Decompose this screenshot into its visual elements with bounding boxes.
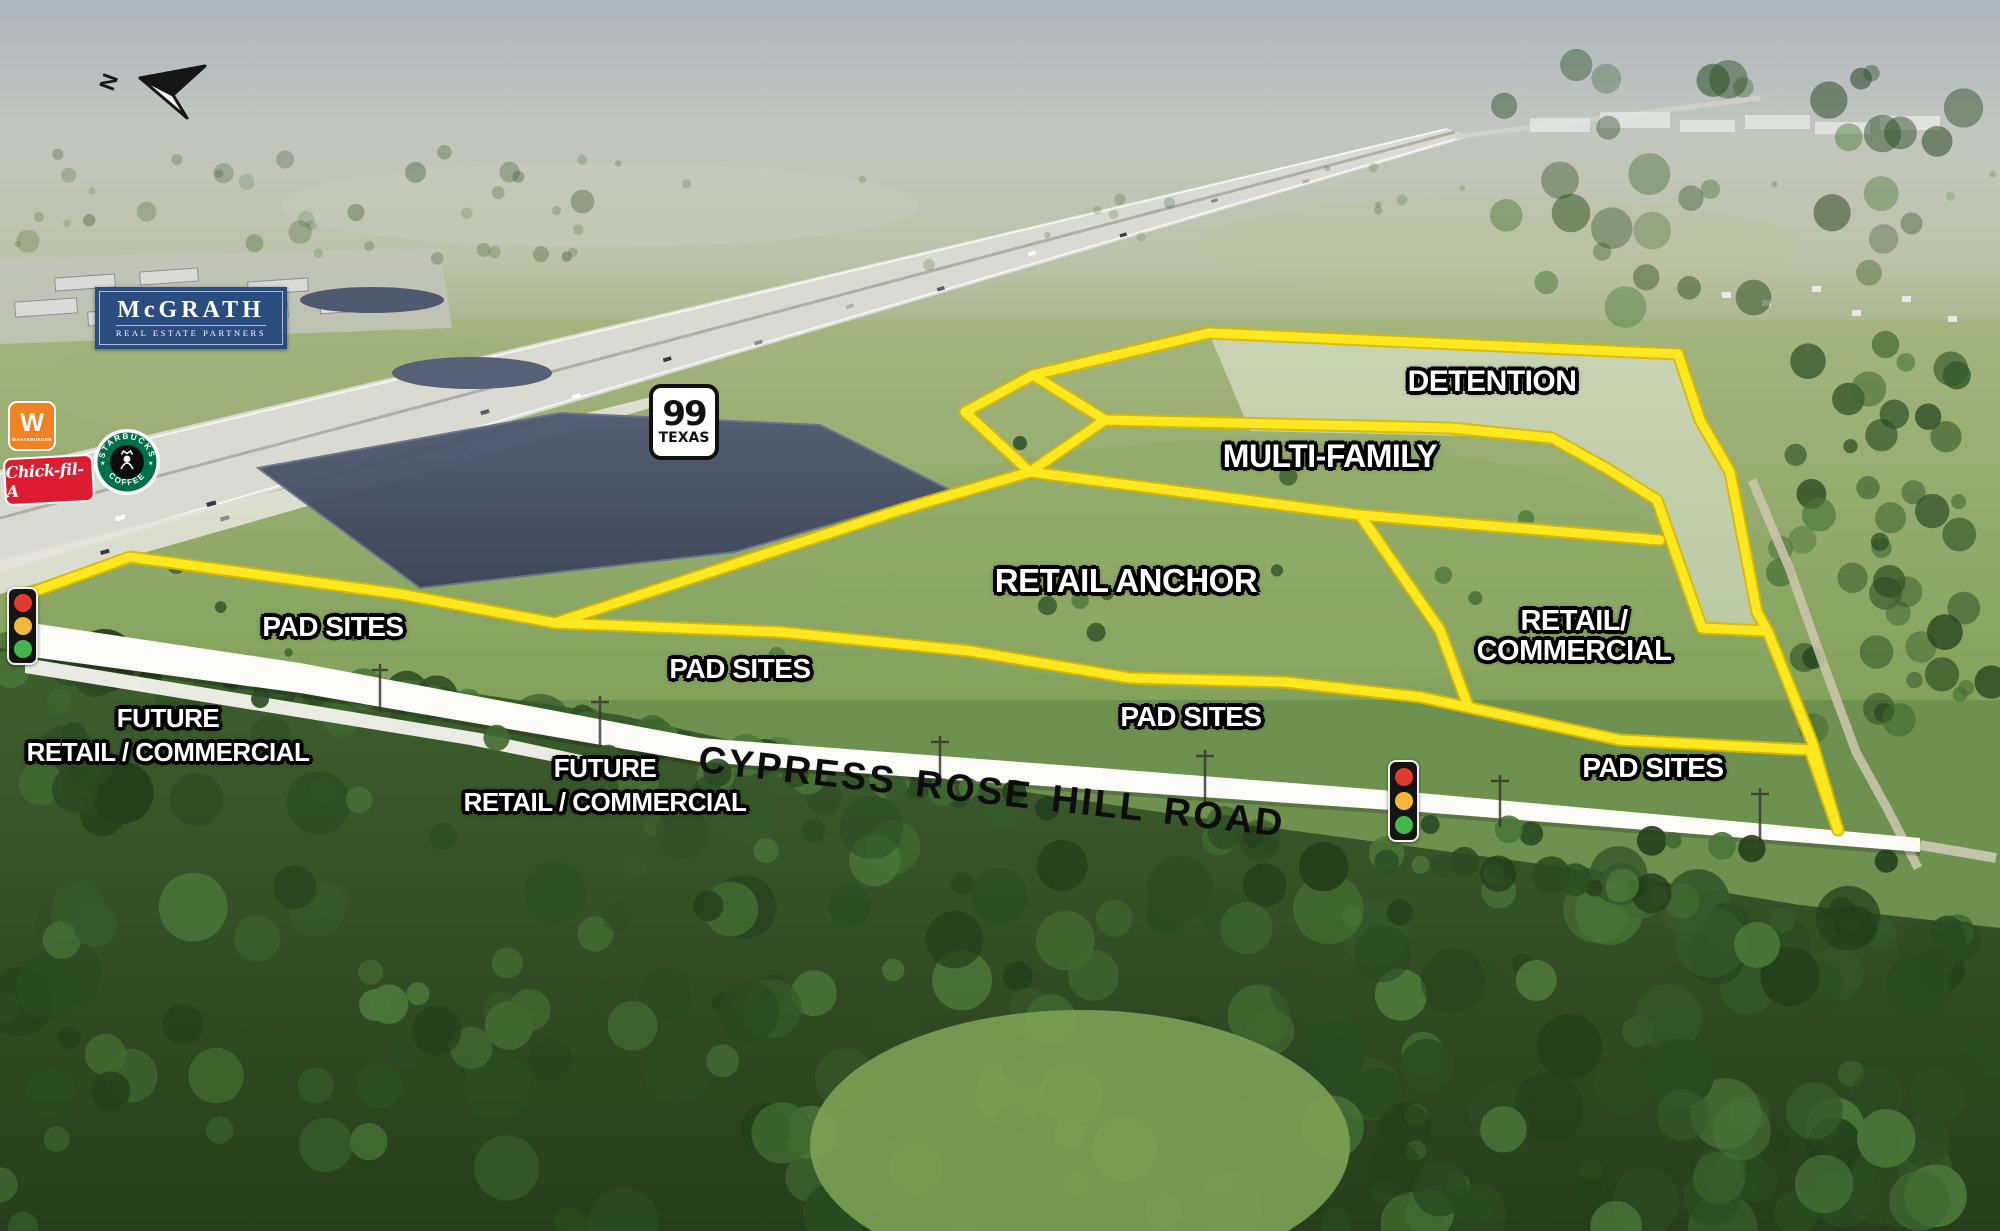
- amber-light-icon: [14, 617, 32, 635]
- north-arrow-icon: N: [95, 50, 225, 134]
- mcgrath-name: McGRATH: [117, 298, 265, 322]
- label-detention: DETENTION: [1372, 366, 1612, 398]
- chickfila-logo-icon: Chick-fil-A: [3, 454, 95, 507]
- red-light-icon: [14, 594, 32, 612]
- label-future-retail-1: FUTURE RETAIL / COMMERCIAL: [10, 702, 326, 770]
- starbucks-star-left: ★: [100, 460, 105, 467]
- traffic-light-icon-west: [7, 587, 38, 665]
- label-multi-family: MULTI-FAMILY: [1205, 440, 1455, 474]
- aerial-site-plan: N McGRATH REAL ESTATE PARTNERS W WHATABU…: [0, 0, 2000, 1231]
- starbucks-star-right: ★: [148, 460, 153, 467]
- highway-state: TEXAS: [659, 430, 710, 446]
- green-light-icon: [1395, 816, 1413, 834]
- highway-number: 99: [662, 398, 705, 430]
- highway-99-shield-icon: 99 TEXAS: [649, 384, 719, 460]
- apartment-pond: [300, 287, 444, 313]
- whataburger-logo-icon: W WHATABURGER: [8, 401, 56, 451]
- north-label: N: [95, 70, 123, 93]
- mcgrath-divider: [116, 325, 265, 326]
- label-pad-sites-1: PAD SITES: [233, 612, 433, 641]
- green-light-icon: [14, 640, 32, 658]
- label-pad-sites-4: PAD SITES: [1553, 753, 1753, 782]
- mcgrath-logo: McGRATH REAL ESTATE PARTNERS: [95, 287, 287, 349]
- label-pad-sites-3: PAD SITES: [1091, 702, 1291, 731]
- amber-light-icon: [1395, 792, 1413, 810]
- whataburger-initial: W: [20, 411, 44, 436]
- label-pad-sites-2: PAD SITES: [640, 654, 840, 683]
- small-pond: [392, 357, 552, 389]
- label-retail-anchor: RETAIL ANCHOR: [976, 564, 1276, 599]
- starbucks-logo-icon: STARBUCKS COFFEE ★ ★: [92, 427, 162, 497]
- whataburger-name: WHATABURGER: [12, 437, 52, 442]
- red-light-icon: [1395, 768, 1413, 786]
- mcgrath-subtitle: REAL ESTATE PARTNERS: [116, 328, 266, 338]
- chickfila-name: Chick-fil-A: [5, 459, 93, 501]
- label-retail-commercial: RETAIL/ COMMERCIAL: [1449, 606, 1699, 667]
